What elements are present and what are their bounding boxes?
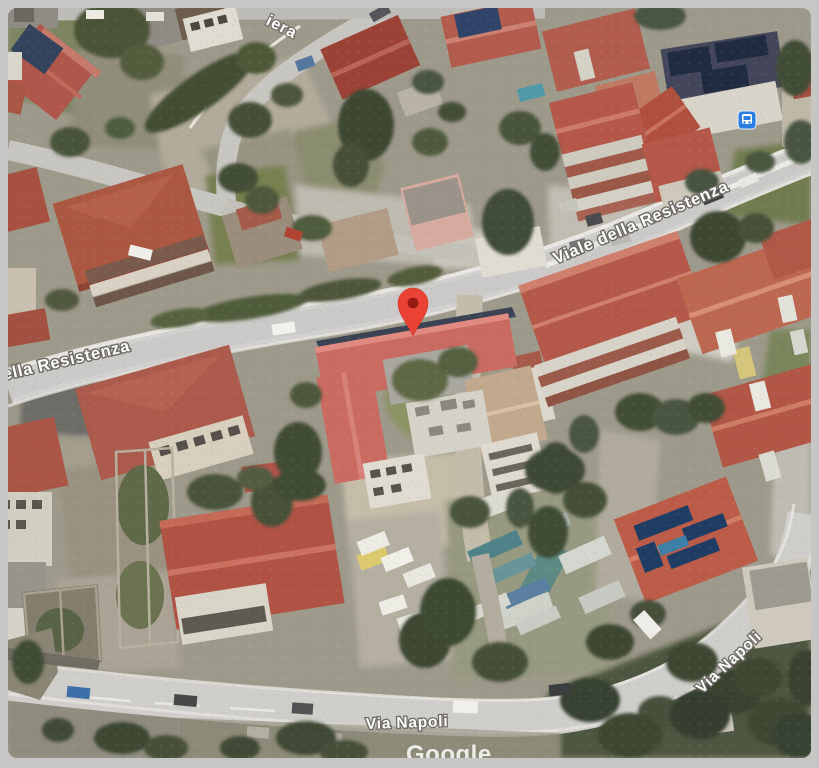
svg-text:Via Napoli: Via Napoli xyxy=(366,713,449,733)
